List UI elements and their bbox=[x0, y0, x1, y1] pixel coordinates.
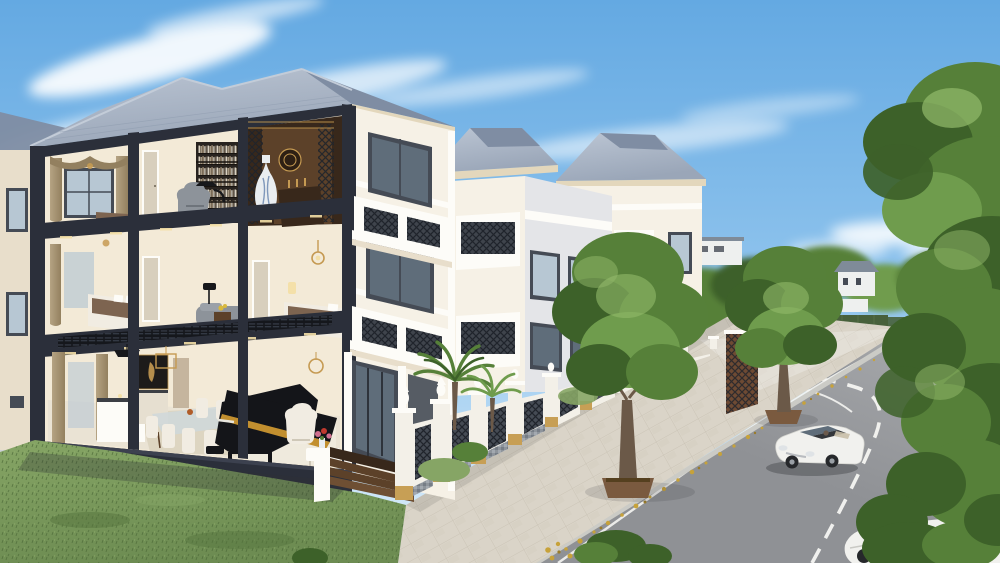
main-villa bbox=[0, 69, 455, 500]
column bbox=[238, 117, 248, 459]
column bbox=[128, 132, 139, 450]
dining-chair bbox=[196, 398, 208, 418]
floor-lamp bbox=[203, 283, 216, 290]
shrub bbox=[418, 458, 470, 482]
centerpiece bbox=[187, 409, 193, 415]
dining-chair bbox=[182, 428, 195, 453]
bedroom-3l bbox=[50, 156, 128, 226]
cutaway-interior bbox=[30, 104, 356, 500]
piano-bench bbox=[206, 446, 224, 454]
shrub bbox=[452, 442, 488, 462]
tree-planter bbox=[765, 410, 802, 424]
chandelier bbox=[87, 163, 93, 169]
ceiling-light bbox=[103, 240, 110, 247]
dining-chair bbox=[162, 424, 175, 448]
column bbox=[30, 146, 45, 444]
dining-chair bbox=[146, 416, 158, 438]
distant-house bbox=[834, 261, 879, 296]
wall-art bbox=[138, 355, 168, 389]
wall-medallion bbox=[279, 149, 301, 171]
headlight bbox=[779, 445, 788, 451]
scene-canvas bbox=[0, 0, 1000, 563]
bedside-lamp bbox=[288, 282, 296, 294]
headlight bbox=[806, 451, 815, 457]
architectural-rendering: 3D architectural rendering: luxury three… bbox=[0, 0, 1000, 563]
driver bbox=[823, 430, 828, 435]
